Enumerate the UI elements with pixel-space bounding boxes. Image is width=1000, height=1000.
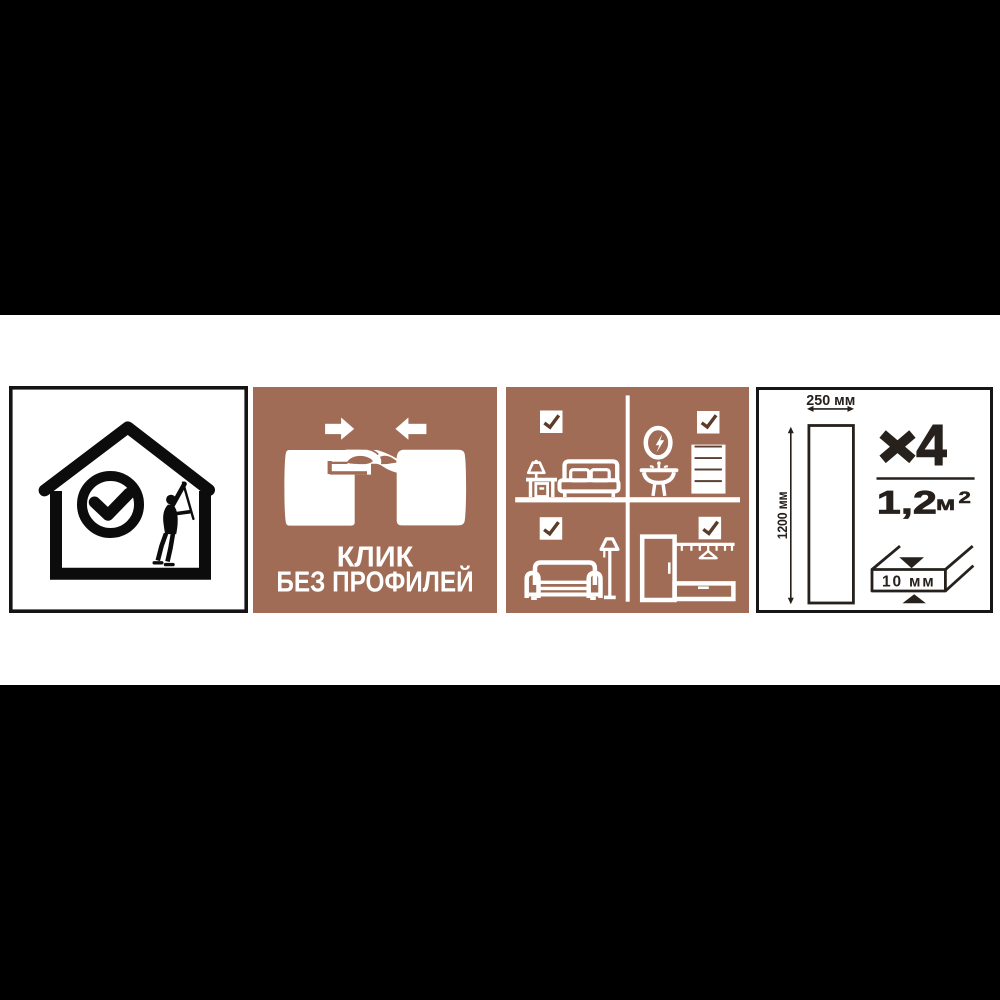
- svg-text:1200 мм: 1200 мм: [775, 491, 791, 539]
- svg-text:2: 2: [959, 488, 972, 507]
- svg-text:10 мм: 10 мм: [882, 573, 935, 590]
- svg-text:БЕЗ ПРОФИЛЕЙ: БЕЗ ПРОФИЛЕЙ: [277, 564, 474, 598]
- svg-text:1,2: 1,2: [877, 484, 937, 521]
- svg-text:м: м: [936, 492, 956, 513]
